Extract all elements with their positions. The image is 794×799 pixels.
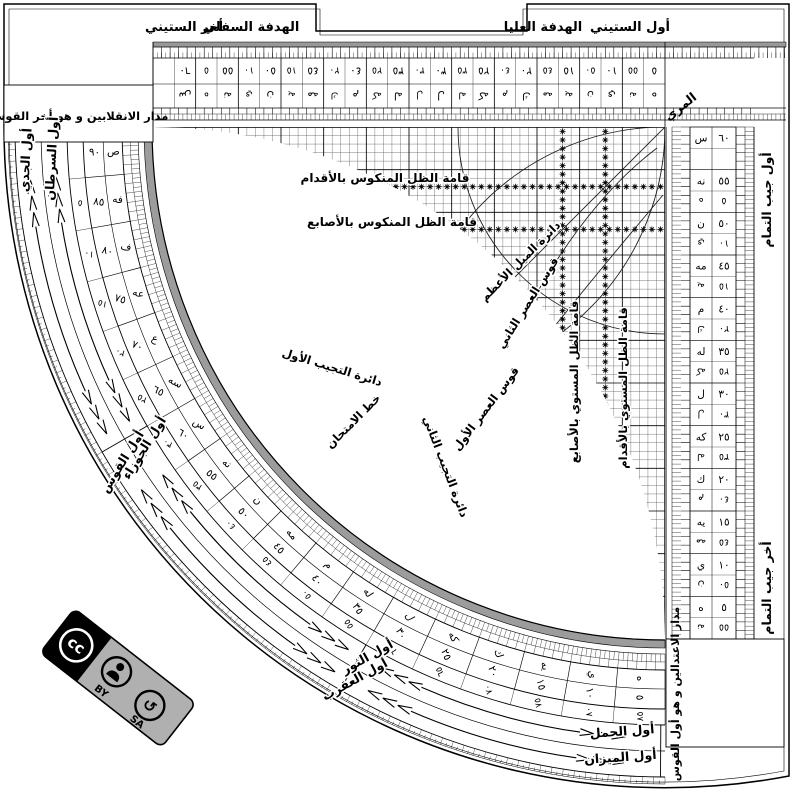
scale-glyph: نه — [697, 622, 705, 633]
scale-glyph: ٩٠ — [89, 146, 101, 158]
scale-glyph: ١٠ — [583, 687, 596, 700]
label-hadafa-ulya: الهدفة العليا — [504, 20, 583, 35]
label-awwal-jayb-tamam: أول جيب التمام — [758, 152, 775, 247]
scale-glyph: ٣٠ — [435, 64, 446, 76]
scale-glyph: كه — [372, 89, 382, 100]
scale-glyph: ن — [697, 218, 705, 230]
scale-glyph: ك — [697, 474, 706, 486]
scale-glyph: ه — [652, 89, 658, 101]
scale-glyph: ٤٠ — [718, 303, 729, 315]
scale-glyph: ٤٠ — [350, 64, 361, 76]
scale-glyph: مه — [307, 89, 318, 101]
label-akhir-jayb-tamam: أخر جيب التمام — [758, 541, 775, 634]
scale-glyph: ٦٠ — [179, 64, 190, 76]
scale-glyph: م — [698, 494, 704, 505]
scale-glyph: ٤٠ — [719, 494, 729, 505]
scale-glyph: ٢٥ — [372, 64, 382, 75]
scale-glyph: نه — [629, 89, 637, 100]
scale-glyph: ك — [330, 89, 338, 100]
scale-glyph: كه — [478, 89, 489, 101]
scale-glyph: ٤٠ — [500, 64, 510, 75]
scale-glyph: ن — [266, 89, 274, 101]
scale-glyph: ٣٠ — [719, 408, 729, 419]
label-mustawi-aqdam: قامة الظل المستوي بالأقدام — [616, 307, 631, 469]
scale-glyph: ٥٥ — [628, 64, 638, 75]
scale-glyph: ٨٥ — [636, 711, 646, 721]
scale-glyph: له — [394, 89, 403, 101]
scale-glyph: ٥٠ — [265, 64, 276, 76]
scale-glyph: ل — [697, 408, 704, 419]
scale-glyph: مه — [695, 261, 706, 273]
scale-glyph: ١٠ — [244, 64, 254, 75]
scale-glyph: ٥٥ — [222, 64, 233, 76]
scale-glyph: ٥٠ — [585, 64, 595, 75]
quadrant-svg: ٦٠س٥٥٥نهه٥٠١٠ني٤٥١٥مهيه٤٠٢٠مك٣٥٢٥لهكه٣٠٣… — [0, 0, 794, 794]
scale-glyph: ل — [697, 389, 705, 401]
scale-glyph: ٢٥ — [718, 431, 729, 443]
scale-glyph: له — [697, 451, 705, 462]
scale-glyph: ٦٠ — [718, 133, 729, 145]
scale-glyph: ن — [587, 89, 594, 100]
scale-glyph: ٢٠ — [329, 64, 339, 75]
scale-glyph: ٥٥ — [718, 175, 729, 187]
scale-glyph: له — [697, 346, 706, 358]
scale-glyph: يه — [697, 280, 705, 291]
scale-glyph: ي — [586, 670, 599, 680]
cosine-scale-column: س٦٠نه٥٥ه٥ن٥٠ي١٠مه٤٥يه١٥م٤٠ك٢٠له٣٥كه٢٥ل٣٠… — [666, 127, 754, 639]
solstice-box-label: مدار الانقلابين و هو أخر القوس — [0, 108, 168, 124]
scale-glyph: كه — [696, 431, 707, 443]
scale-glyph: يه — [697, 517, 706, 529]
scale-glyph: م — [502, 89, 508, 100]
scale-glyph: مه — [696, 536, 706, 547]
scale-glyph: ١٥ — [287, 64, 297, 75]
scale-glyph: س — [179, 89, 192, 101]
label-mankus-aqdam: قامة الظل المنكوس بالأقدام — [301, 170, 470, 186]
sine-quadrant-diagram: ٦٠س٥٥٥نهه٥٠١٠ني٤٥١٥مهيه٤٠٢٠مك٣٥٢٥لهكه٣٠٣… — [0, 0, 794, 794]
scale-glyph: ل — [437, 89, 445, 101]
scale-glyph: فه — [112, 193, 124, 206]
scale-glyph: م — [698, 303, 705, 315]
scale-glyph: ك — [522, 89, 531, 101]
scale-glyph: ٤٥ — [543, 64, 553, 75]
cc-by-sa-badge: cc BY ↺ SA — [39, 609, 195, 749]
scale-glyph: ل — [416, 89, 423, 100]
scale-glyph: ٥٠ — [719, 579, 729, 590]
scale-glyph: ي — [245, 89, 252, 100]
scale-glyph: ٣٥ — [393, 64, 404, 76]
scale-glyph: ٢٠ — [719, 323, 729, 334]
scale-glyph: ١٥ — [718, 517, 729, 529]
scale-glyph: ٤٥ — [307, 64, 318, 76]
scale-glyph: ٨٠ — [584, 706, 595, 717]
label-akhir-sittini: أخر الستيني — [145, 18, 223, 35]
scale-glyph: ٥ — [721, 195, 726, 206]
equinox-box — [666, 639, 784, 747]
scale-glyph: كه — [696, 366, 706, 377]
scale-glyph: له — [458, 89, 466, 100]
scale-glyph: ٢٥ — [478, 64, 489, 76]
scale-glyph: ٥ — [721, 602, 727, 614]
scale-glyph: ٢٥ — [719, 366, 729, 377]
scale-glyph: ١٠ — [606, 64, 617, 76]
scale-glyph: ٣٠ — [718, 389, 729, 401]
scale-glyph: ٢٠ — [718, 474, 729, 486]
scale-glyph: س — [695, 133, 708, 145]
scale-glyph: يه — [565, 89, 574, 101]
scale-glyph: ٥ — [651, 64, 657, 76]
scale-glyph: ه — [698, 195, 703, 206]
scale-glyph: يه — [287, 89, 295, 100]
scale-glyph: م — [352, 89, 359, 101]
scale-glyph: ن — [697, 579, 704, 590]
scale-glyph: ٥٠ — [718, 218, 729, 230]
label-awwal-sittini: أول الستيني — [590, 18, 670, 35]
scale-glyph: ٥٥ — [719, 622, 729, 633]
scale-glyph: ه — [698, 602, 704, 614]
scale-glyph: ٣٥ — [719, 451, 729, 462]
scale-glyph: ٤٥ — [718, 261, 729, 273]
scale-glyph: ٨٥ — [92, 195, 105, 208]
scale-glyph: ٣٠ — [415, 64, 425, 75]
scale-glyph: ٥ — [204, 64, 209, 75]
scale-glyph: ٣٥ — [718, 346, 729, 358]
scale-glyph: ٢٠ — [521, 64, 532, 76]
scale-glyph: ٥ — [633, 694, 645, 700]
scale-glyph: ي — [608, 89, 616, 101]
zodiac-outer-capricorn: أول الجدي — [15, 128, 34, 193]
scale-glyph: نه — [697, 175, 706, 187]
scale-glyph: ه — [204, 89, 209, 100]
scale-glyph: ي — [697, 559, 705, 571]
scale-glyph: ١٠ — [718, 559, 729, 571]
scale-glyph: نه — [223, 89, 232, 101]
scale-glyph: ك — [697, 323, 705, 334]
scale-glyph: ١٠ — [719, 238, 729, 249]
equinox-box-label: مدار الاعتدالين و هو أول القوس — [668, 607, 682, 781]
scale-glyph: مه — [543, 89, 553, 100]
scale-glyph: ٤٥ — [719, 536, 729, 547]
scale-glyph: ٣٥ — [457, 64, 467, 75]
scale-glyph: ي — [697, 238, 704, 249]
scale-glyph: ه — [634, 676, 646, 682]
scale-glyph: ١٥ — [563, 64, 574, 76]
label-mustawi-asabi: قامة الظل المستوي بالأصابع — [567, 301, 582, 464]
label-mankus-asabi: قامة الظل المنكوس بالأصابع — [307, 214, 477, 230]
scale-glyph: ص — [107, 145, 120, 158]
scale-glyph: ١٥ — [719, 280, 729, 291]
